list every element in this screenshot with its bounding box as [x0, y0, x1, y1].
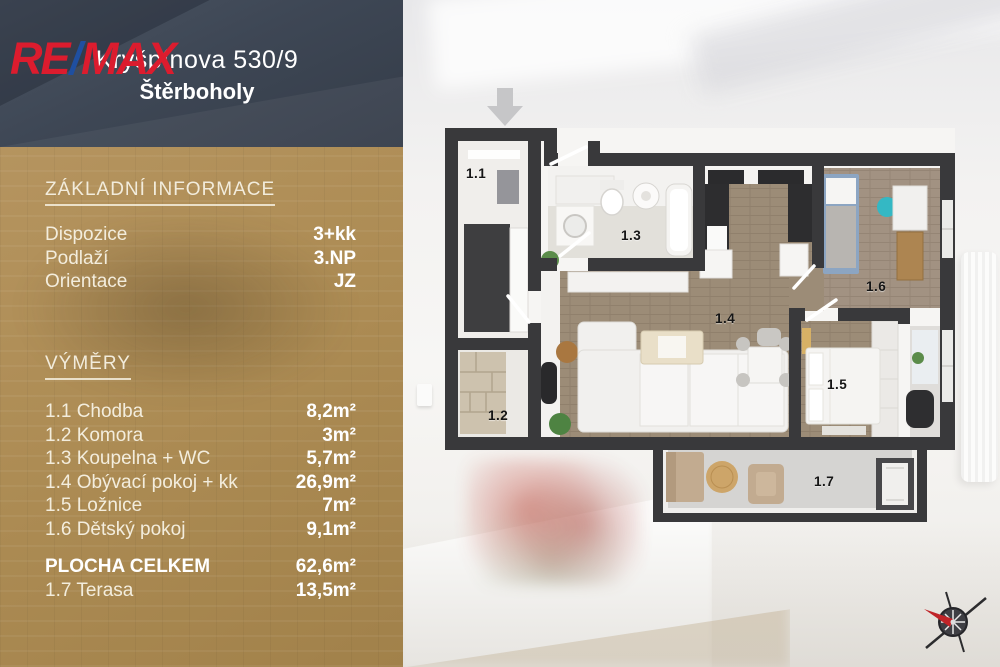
area-value: 8,2m² [306, 401, 356, 423]
terrace-label: 1.7 Terasa [45, 580, 133, 602]
area-value: 5,7m² [306, 448, 356, 470]
room-label-1-3: 1.3 [621, 228, 641, 243]
dining-table [748, 347, 782, 383]
total-value: 62,6m² [296, 556, 356, 578]
area-rows: 1.1 Chodba 8,2m² 1.2 Komora 3m² 1.3 Koup… [45, 401, 356, 542]
room-label-1-2: 1.2 [488, 408, 508, 423]
terrace-value: 13,5m² [296, 580, 356, 602]
total-label: PLOCHA CELKEM [45, 556, 210, 578]
room-label-1-4: 1.4 [715, 311, 735, 326]
area-value: 26,9m² [296, 472, 356, 494]
area-label: 1.3 Koupelna + WC [45, 448, 210, 470]
tv-sideboard [568, 272, 688, 292]
side-table [556, 341, 578, 363]
info-label: Dispozice [45, 224, 127, 246]
floor-shading [398, 520, 1000, 667]
room-label-1-6: 1.6 [866, 279, 886, 294]
wood-wardrobe [897, 232, 923, 280]
info-row: Dispozice 3+kk [45, 224, 356, 248]
info-label: Orientace [45, 271, 127, 293]
compass-rose-icon [920, 586, 992, 658]
remax-logo: RE/MAX [10, 36, 175, 81]
area-row: 1.5 Ložnice 7m² [45, 495, 356, 519]
room-label-1-5: 1.5 [827, 377, 847, 392]
plant [549, 413, 571, 435]
fireplace [541, 362, 557, 404]
real-estate-floorplan-slide: Kryšpínova 530/9 Štěrboholy RE/MAX ZÁKLA… [0, 0, 1000, 667]
area-row: 1.2 Komora 3m² [45, 425, 356, 449]
info-value: 3+kk [313, 224, 356, 246]
info-panel: ZÁKLADNÍ INFORMACE Dispozice 3+kk Podlaž… [0, 147, 403, 667]
area-label: 1.2 Komora [45, 425, 143, 447]
entrance-arrow-icon [487, 88, 523, 126]
room-label-1-7: 1.7 [814, 474, 834, 489]
area-value: 9,1m² [306, 519, 356, 541]
basic-info-title: ZÁKLADNÍ INFORMACE [45, 179, 275, 206]
area-row: 1.3 Koupelna + WC 5,7m² [45, 448, 356, 472]
area-row: 1.4 Obývací pokoj + kk 26,9m² [45, 472, 356, 496]
terrace [653, 450, 927, 522]
header: Kryšpínova 530/9 Štěrboholy RE/MAX [0, 0, 403, 147]
info-row: Podlaží 3.NP [45, 248, 356, 272]
info-row: Orientace JZ [45, 271, 356, 295]
area-label: 1.1 Chodba [45, 401, 143, 423]
light-switch [417, 384, 432, 406]
area-label: 1.4 Obývací pokoj + kk [45, 472, 238, 494]
terrace-area-row: 1.7 Terasa 13,5m² [45, 580, 356, 604]
desk-chair [906, 390, 934, 428]
areas-title: VÝMĚRY [45, 353, 131, 380]
room-label-1-1: 1.1 [466, 166, 486, 181]
total-area-row: PLOCHA CELKEM 62,6m² [45, 556, 356, 580]
logo-re: RE [10, 33, 69, 84]
area-value: 3m² [322, 425, 356, 447]
area-label: 1.5 Ložnice [45, 495, 142, 517]
area-value: 7m² [322, 495, 356, 517]
info-value: JZ [334, 271, 356, 293]
logo-max: MAX [81, 33, 175, 84]
info-value: 3.NP [314, 248, 356, 270]
wardrobe-dark [464, 224, 510, 332]
info-label: Podlaží [45, 248, 108, 270]
floor-plan [440, 80, 960, 540]
radiator [961, 252, 998, 482]
basic-info-rows: Dispozice 3+kk Podlaží 3.NP Orientace JZ [45, 224, 356, 295]
logo-slash: / [69, 33, 82, 84]
kids-bed [823, 174, 859, 274]
toilet [601, 189, 623, 215]
area-row: 1.6 Dětský pokoj 9,1m² [45, 519, 356, 543]
area-row: 1.1 Chodba 8,2m² [45, 401, 356, 425]
area-label: 1.6 Dětský pokoj [45, 519, 185, 541]
